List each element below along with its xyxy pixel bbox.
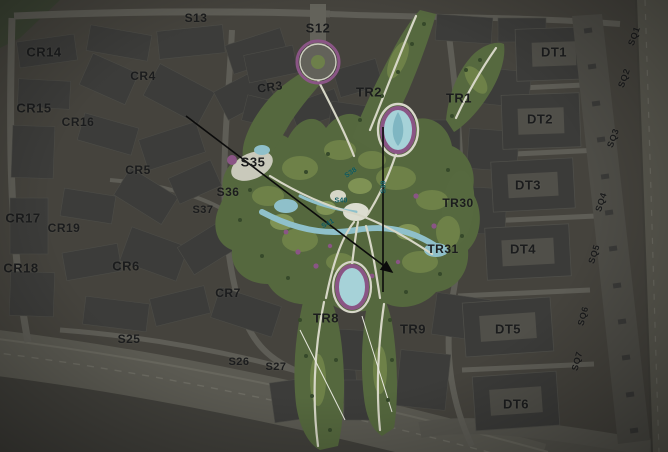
masterplan-map: S13S12CR14CR4CR3TR2TR1DT1DT2CR15CR16CR5S… (0, 0, 668, 452)
oval-pond-node (333, 262, 371, 312)
teardrop-pond-node (378, 104, 418, 156)
satellite-scene (0, 0, 668, 452)
